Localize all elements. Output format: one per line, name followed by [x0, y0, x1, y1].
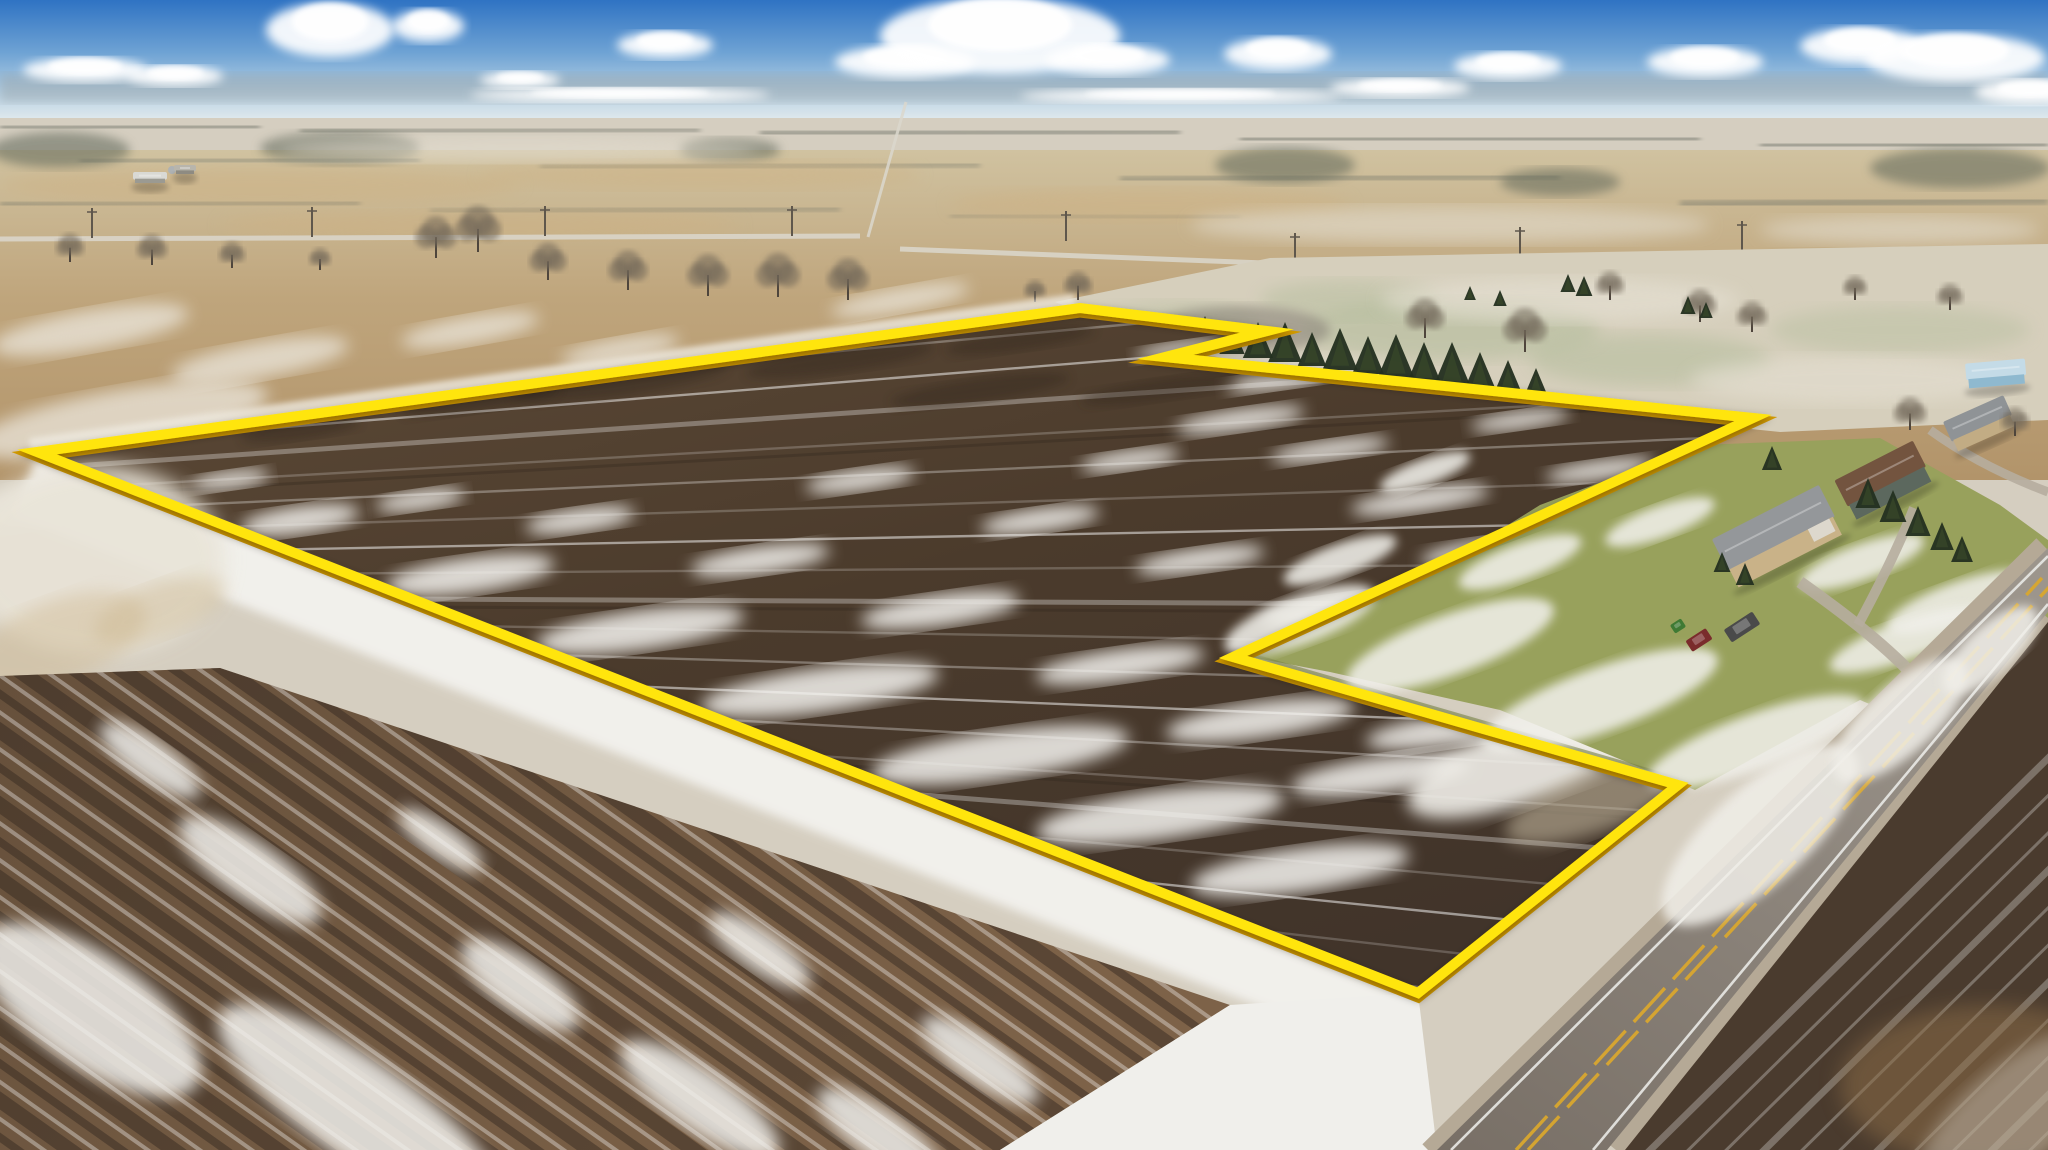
distant-farm-left-barn [173, 165, 197, 184]
distant-farm-left-shed [131, 172, 168, 193]
scene-svg [0, 0, 2048, 1150]
aerial-photo [0, 0, 2048, 1150]
horizon-ridge [0, 74, 2048, 102]
